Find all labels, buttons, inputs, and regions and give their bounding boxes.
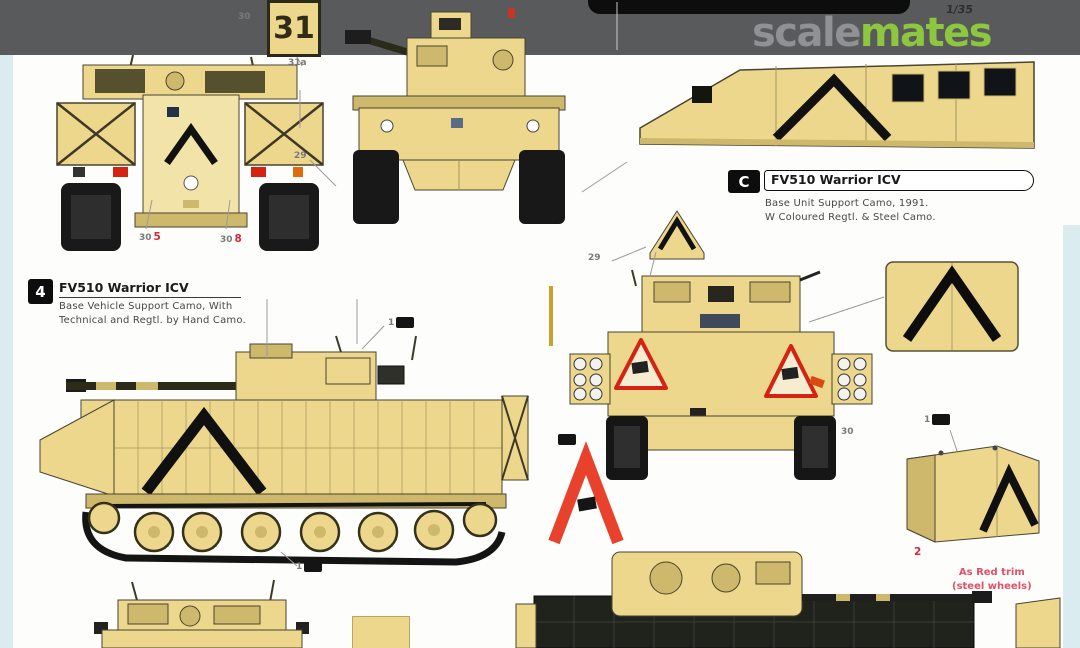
callout-swatch <box>556 434 576 445</box>
callout-30a: 30 <box>841 427 854 437</box>
black-swatch <box>304 561 322 572</box>
callout-red-5: 305 <box>139 231 161 243</box>
decal-instruction-sheet: 1/35 scalemates 31 <box>0 0 1080 648</box>
callout-red-2: 2 <box>912 546 921 558</box>
callout-31a: 31a <box>288 58 307 68</box>
callout-29a: 29 <box>294 151 307 161</box>
callout-red-8: 308 <box>220 233 242 245</box>
callout-29b: 29 <box>588 253 601 263</box>
red-note-line-1: As Red trim <box>952 566 1032 580</box>
callout-30b: 30 <box>238 12 251 22</box>
black-swatch <box>396 317 414 328</box>
red-note: As Red trim (steel wheels) <box>952 566 1032 594</box>
black-swatch <box>932 414 950 425</box>
callout-1c: 1 <box>924 414 950 425</box>
callout-1b: 1 <box>296 561 322 572</box>
red-note-line-2: (steel wheels) <box>952 580 1032 594</box>
callout-1a: 1 <box>388 317 414 328</box>
black-swatch <box>558 434 576 445</box>
